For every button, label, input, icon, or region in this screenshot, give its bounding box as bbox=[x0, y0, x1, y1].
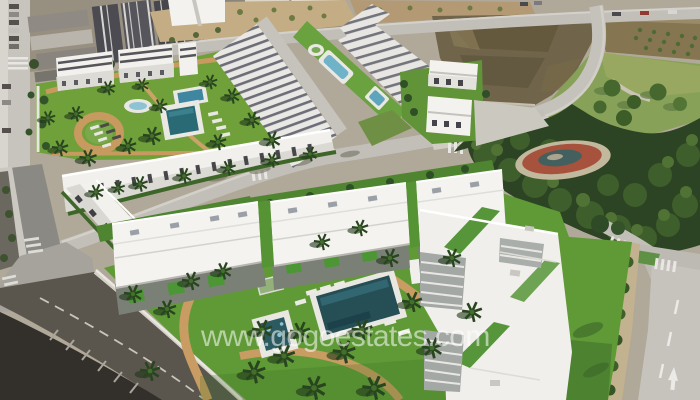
svg-text:www.gogoestates.com: www.gogoestates.com bbox=[200, 320, 490, 353]
